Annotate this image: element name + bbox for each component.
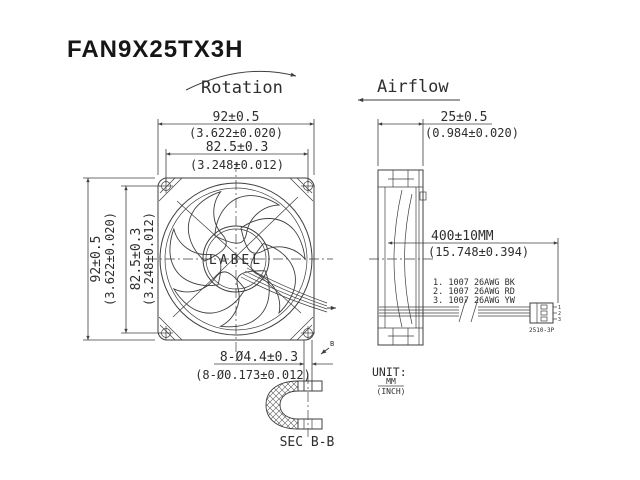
unit-denominator: (INCH) bbox=[377, 387, 406, 396]
dim-width-inch: (3.622±0.020) bbox=[189, 126, 283, 140]
airflow-label: Airflow bbox=[377, 77, 449, 97]
section-cut-body bbox=[266, 381, 298, 429]
units-note: UNIT: MM (INCH) bbox=[372, 365, 407, 396]
rotation-label: Rotation bbox=[201, 78, 283, 98]
section-top-flange bbox=[298, 381, 322, 391]
drawing-canvas: FAN9X25TX3H Rotation Airflow bbox=[0, 0, 640, 480]
cable-assembly: 1. 1007 26AWG BK 2. 1007 26AWG RD 3. 100… bbox=[423, 278, 561, 334]
front-dimensions: 92±0.5 (3.622±0.020) 82.5±0.3 (3.248±0.0… bbox=[83, 110, 333, 391]
dim-height-inch: (3.622±0.020) bbox=[103, 212, 117, 306]
dim-hole-pitch-mm: 82.5±0.3 bbox=[206, 140, 269, 155]
blade-profile bbox=[394, 190, 402, 327]
dim-depth-mm: 25±0.5 bbox=[441, 110, 488, 125]
side-view bbox=[369, 170, 433, 345]
unit-numerator: MM bbox=[386, 377, 396, 386]
cable-length-mm: 400±10MM bbox=[431, 229, 494, 244]
connector: 1 2 3 2510-3P bbox=[529, 303, 561, 334]
dim-hole-pitch-v-inch: (3.248±0.012) bbox=[142, 212, 156, 306]
fan-technical-drawing: FAN9X25TX3H Rotation Airflow bbox=[0, 0, 640, 480]
connector-body bbox=[530, 303, 553, 323]
section-detail: SEC B-B bbox=[266, 374, 335, 450]
front-view: LABEL B bbox=[147, 162, 336, 354]
section-arrow-icon bbox=[321, 348, 329, 354]
cable-length-inch: (15.748±0.394) bbox=[428, 245, 529, 259]
page-title: FAN9X25TX3H bbox=[67, 36, 243, 63]
connector-pin bbox=[541, 317, 547, 321]
dim-hole-pitch-inch: (3.248±0.012) bbox=[190, 158, 284, 172]
holes-callout-inch: (8-Ø0.173±0.012) bbox=[195, 368, 311, 382]
holes-callout-mm: 8-Ø4.4±0.3 bbox=[220, 350, 298, 365]
hub-label: LABEL bbox=[209, 253, 263, 268]
lead-wires bbox=[241, 268, 336, 312]
section-marker: B bbox=[330, 340, 334, 348]
connector-pin bbox=[541, 305, 547, 309]
cable-wires bbox=[423, 307, 530, 316]
header: FAN9X25TX3H Rotation Airflow bbox=[67, 36, 460, 100]
dim-depth-inch: (0.984±0.020) bbox=[425, 126, 519, 140]
side-wire-band bbox=[379, 307, 423, 316]
dim-width-mm: 92±0.5 bbox=[213, 110, 260, 125]
connector-pin bbox=[541, 311, 547, 315]
section-label: SEC B-B bbox=[280, 435, 335, 450]
connector-label: 2510-3P bbox=[529, 327, 555, 334]
dim-height-mm: 92±0.5 bbox=[89, 236, 104, 283]
wire-spec-3: 3. 1007 26AWG YW bbox=[433, 296, 516, 306]
section-bottom-flange bbox=[298, 419, 322, 429]
pin-number-3: 3 bbox=[558, 317, 561, 323]
